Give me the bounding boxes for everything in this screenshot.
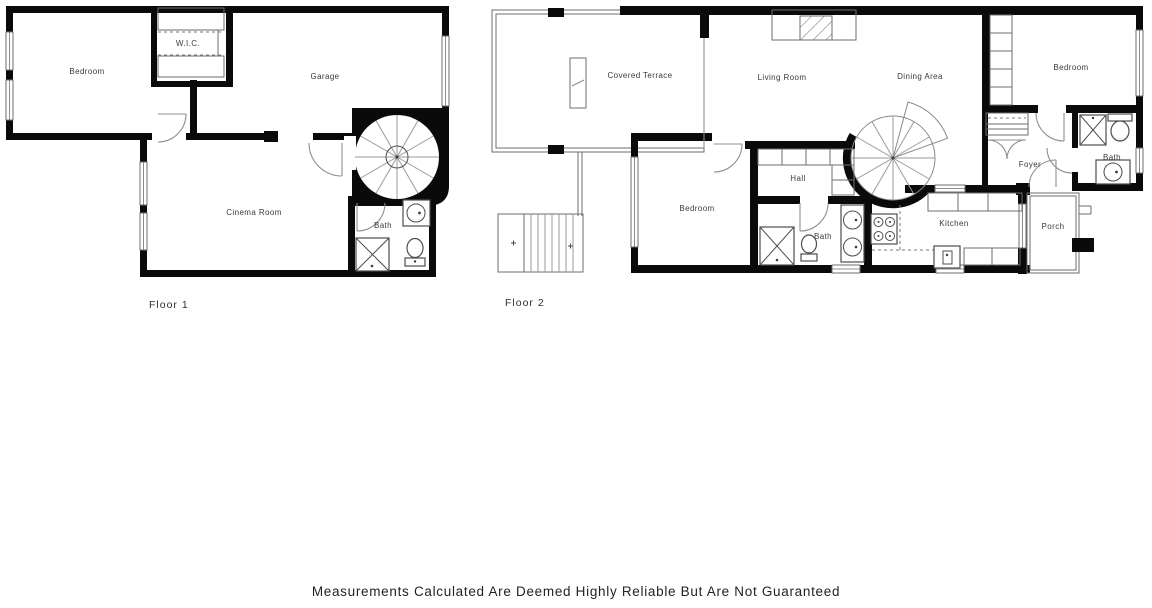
exterior-stairs-icon (498, 214, 583, 272)
sink-icon (1096, 160, 1130, 184)
floorplan-canvas: Bedroom W.I.C. Garage Cinema Room Bath (0, 0, 1152, 608)
floorplan-image: Bedroom W.I.C. Garage Cinema Room Bath (0, 0, 1152, 608)
dresser-icon (986, 113, 1028, 135)
shower-icon (760, 227, 794, 265)
bedroom-closet-icon (990, 15, 1012, 105)
kitchen-sink-icon (934, 246, 960, 268)
floor1-caption: Floor 1 (149, 299, 189, 311)
room-label-living-room: Living Room (758, 73, 807, 82)
room-label-bedroom-f1: Bedroom (69, 67, 104, 76)
toilet-icon (405, 239, 425, 267)
room-label-garage: Garage (310, 72, 339, 81)
floor2-plan: Covered Terrace Living Room Dining Area … (492, 6, 1143, 274)
room-label-bath-mid: Bath (814, 232, 832, 241)
double-sink-vanity-icon (841, 205, 864, 262)
bath-mid-fixtures (760, 205, 864, 265)
floor2-caption: Floor 2 (505, 297, 545, 309)
stove-icon (871, 214, 897, 244)
room-label-dining-area: Dining Area (897, 72, 943, 81)
covered-terrace-outline (492, 8, 704, 216)
terrace-post (548, 145, 564, 154)
room-label-bath-right: Bath (1103, 153, 1121, 162)
terrace-post (548, 8, 564, 17)
disclaimer-text: Measurements Calculated Are Deemed Highl… (312, 584, 840, 599)
hall-closet-icon (758, 149, 854, 195)
room-label-cinema-room: Cinema Room (226, 208, 282, 217)
sink-icon (403, 200, 430, 226)
closet-doors-icon (988, 140, 1026, 159)
shower-icon (356, 238, 389, 271)
floor1-bath-fixtures (356, 200, 430, 271)
porch-outline (1027, 193, 1094, 273)
room-label-bedroom-top: Bedroom (1053, 63, 1088, 72)
bath-right-fixtures (1080, 114, 1132, 184)
room-label-porch: Porch (1042, 222, 1065, 231)
room-label-wic: W.I.C. (176, 39, 200, 48)
room-label-kitchen: Kitchen (939, 219, 968, 228)
toilet-icon (1108, 114, 1132, 141)
room-label-bedroom-mid: Bedroom (679, 204, 714, 213)
room-label-hall: Hall (790, 174, 805, 183)
room-label-covered-terrace: Covered Terrace (608, 71, 673, 80)
shower-icon (1080, 115, 1106, 145)
room-label-bath-f1: Bath (374, 221, 392, 230)
room-label-foyer: Foyer (1019, 160, 1041, 169)
floor1-plan: Bedroom W.I.C. Garage Cinema Room Bath (6, 6, 449, 277)
